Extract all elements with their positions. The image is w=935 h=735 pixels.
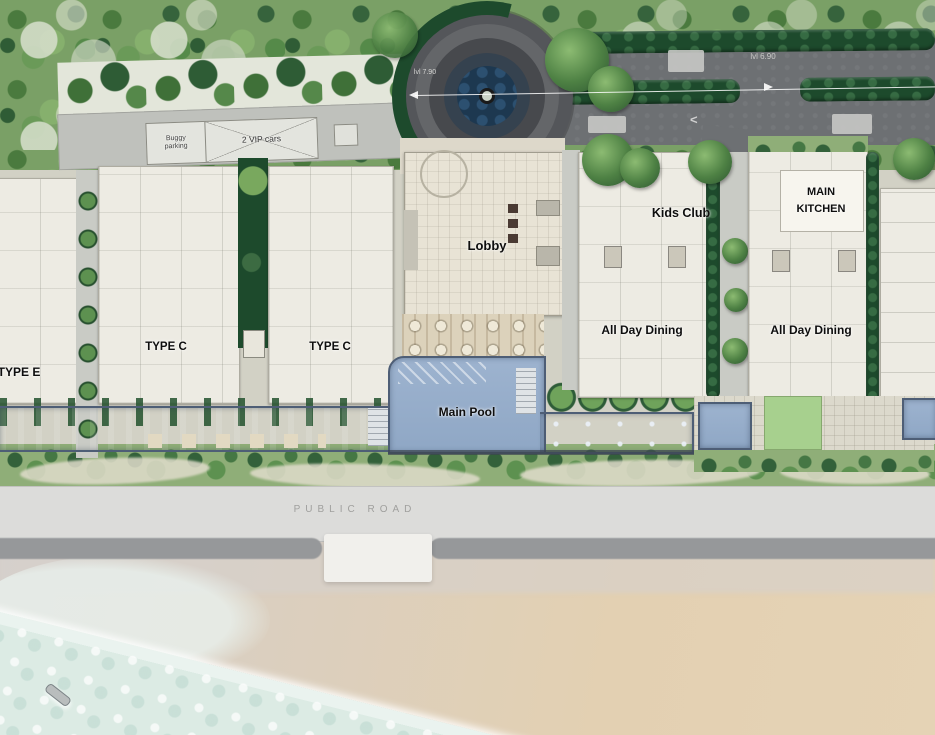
dimension-arrow-icon bbox=[409, 91, 418, 99]
lobby-core bbox=[508, 219, 518, 228]
public-road bbox=[0, 486, 935, 542]
building-kids-club bbox=[578, 152, 708, 398]
road-crossing bbox=[588, 116, 626, 133]
building-core bbox=[772, 250, 790, 272]
tree-icon bbox=[893, 138, 935, 180]
tree-icon bbox=[724, 288, 748, 312]
parking-stall bbox=[334, 124, 359, 147]
pool-deck-platforms bbox=[148, 434, 326, 448]
courtyard-garden bbox=[238, 158, 268, 348]
roundabout-level-label: lvl 7.90 bbox=[412, 68, 438, 77]
lobby-service-block bbox=[536, 246, 560, 266]
building-type-c-west bbox=[98, 166, 240, 404]
tree-icon bbox=[722, 238, 748, 264]
main-pool-steps bbox=[516, 368, 536, 414]
small-pool-east bbox=[902, 398, 935, 440]
road-level-label: lvl 6.90 bbox=[750, 52, 776, 62]
chevron-left-icon: < bbox=[690, 112, 698, 127]
lobby-west-wing bbox=[404, 210, 418, 270]
hedge-vertical bbox=[866, 152, 879, 402]
parking-strip: Buggy parking 2 VIP cars bbox=[145, 117, 318, 165]
type-c-east-label: TYPE C bbox=[290, 341, 370, 354]
building-core bbox=[668, 246, 686, 268]
courtyard-pavilion bbox=[243, 330, 265, 358]
road-crossing bbox=[832, 114, 872, 134]
main-pool-label: Main Pool bbox=[430, 406, 504, 420]
seawall-west bbox=[0, 538, 322, 559]
tree-icon bbox=[688, 140, 732, 184]
all-day-dining-west-label: All Day Dining bbox=[594, 324, 690, 338]
dimension-arrow-icon bbox=[764, 83, 773, 91]
terrace-shrubs bbox=[694, 450, 934, 472]
site-plan: Buggy parking 2 VIP cars lvl 7.90 lvl 6.… bbox=[0, 0, 935, 735]
buggy-parking-zone: Buggy parking bbox=[146, 122, 206, 164]
road-crossing bbox=[668, 50, 704, 72]
tree-icon bbox=[372, 12, 418, 58]
type-e-label: TYPE E bbox=[0, 366, 48, 380]
lobby-core bbox=[508, 204, 518, 213]
lobby-entry-court bbox=[420, 150, 468, 198]
type-c-west-label: TYPE C bbox=[126, 341, 206, 354]
main-pool-loungers bbox=[398, 362, 486, 384]
small-pool-west bbox=[698, 402, 752, 450]
vip-parking-label: 2 VIP cars bbox=[242, 134, 281, 145]
building-core bbox=[604, 246, 622, 268]
building-core bbox=[838, 250, 856, 272]
all-day-dining-east-label: All Day Dining bbox=[761, 324, 861, 338]
public-road-label: PUBLIC ROAD bbox=[270, 504, 440, 515]
buggy-parking-label: Buggy parking bbox=[154, 134, 199, 152]
main-pool-channel bbox=[540, 412, 694, 454]
road-hedge-top bbox=[578, 28, 935, 54]
hedge-vertical bbox=[706, 152, 720, 398]
vip-parking-zone: 2 VIP cars bbox=[205, 118, 317, 162]
building-type-c-east bbox=[268, 166, 394, 404]
seawall-east bbox=[430, 538, 935, 559]
lawn bbox=[764, 396, 822, 450]
kids-club-label: Kids Club bbox=[638, 206, 724, 220]
main-kitchen-label: MAIN KITCHEN bbox=[788, 184, 854, 217]
beach-access-path bbox=[324, 534, 432, 582]
pool-steps bbox=[368, 408, 390, 446]
lobby-label: Lobby bbox=[457, 239, 517, 254]
tree-icon bbox=[620, 148, 660, 188]
building-far-right bbox=[880, 188, 935, 404]
tree-icon bbox=[722, 338, 748, 364]
tree-icon bbox=[588, 66, 634, 112]
service-shrubs bbox=[748, 136, 868, 152]
pool-wall-edge bbox=[388, 450, 694, 455]
lobby-service-block bbox=[536, 200, 560, 216]
